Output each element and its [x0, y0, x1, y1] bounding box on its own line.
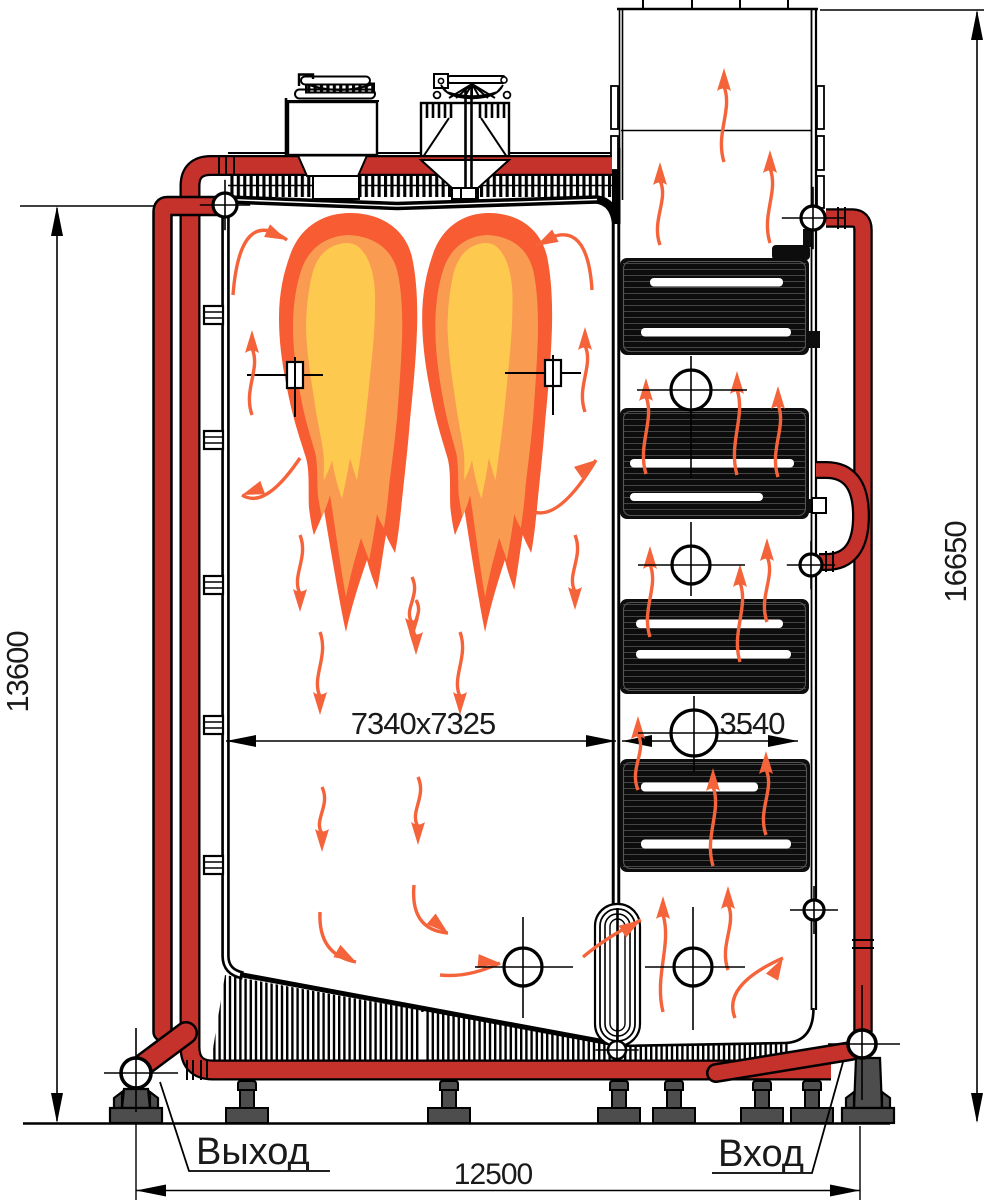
svg-text:Выход: Выход	[196, 1131, 310, 1173]
svg-text:12500: 12500	[454, 1158, 533, 1191]
svg-text:16650: 16650	[938, 521, 973, 603]
svg-text:7340x7325: 7340x7325	[351, 706, 495, 741]
svg-text:Вход: Вход	[718, 1133, 804, 1175]
svg-text:3540: 3540	[720, 706, 786, 741]
svg-text:13600: 13600	[0, 631, 35, 713]
